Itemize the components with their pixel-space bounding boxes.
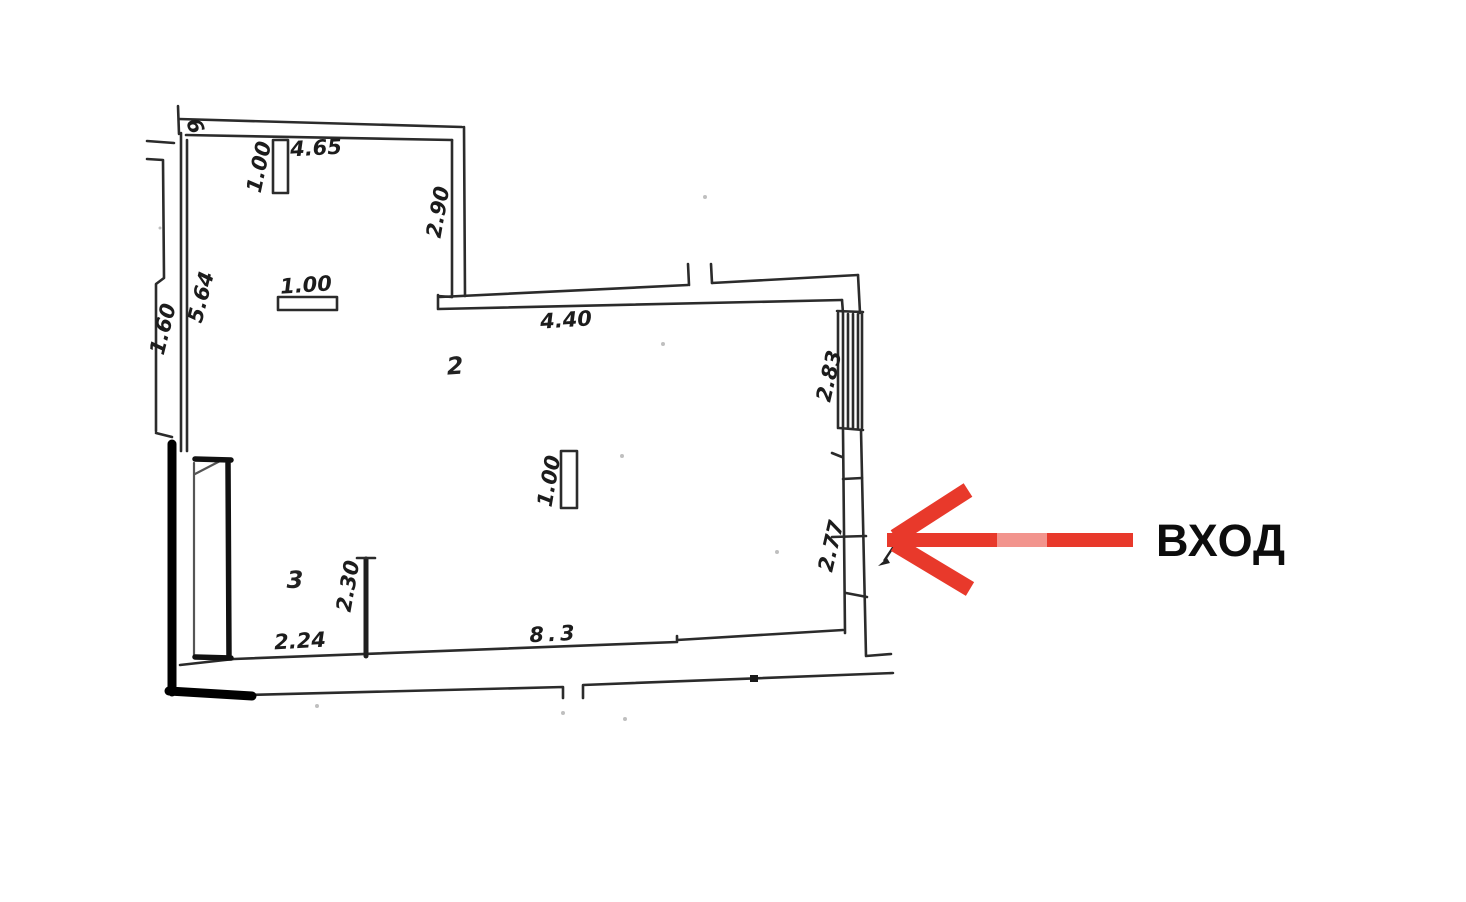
right-wall: [842, 275, 891, 656]
dimension-labels: 1.00 4.65 2.90 1.00 5.64 1.60 4.40 2.83 …: [145, 115, 849, 654]
scan-speckles: [159, 195, 780, 721]
door-leaf-heavy-edges: [195, 459, 231, 658]
entrance-arrow-lower-stroke: [895, 544, 970, 589]
bottom-outer-wall: [248, 673, 893, 698]
dim-right-jog-depth: 2.90: [422, 184, 455, 239]
upper-doorway-jambs: [688, 264, 712, 285]
neighbor-wall-contour-left: [147, 106, 179, 437]
floor-plan-drawing: 1.00 4.65 2.90 1.00 5.64 1.60 4.40 2.83 …: [0, 0, 1466, 902]
dim-right-window-height: 2.83: [811, 348, 846, 404]
entrance-annotation: ВХОД: [887, 490, 1286, 589]
room-number-2: 2: [446, 351, 465, 380]
dim-partition-length: 2.30: [332, 558, 365, 613]
left-wall: [181, 133, 187, 451]
dim-bottom-wall-length: 8.3: [529, 621, 579, 648]
plan-linework: [147, 106, 894, 721]
upper-wall-4-40: [438, 275, 858, 309]
dim-left-wall-length: 5.64: [183, 269, 219, 325]
left-window-marker: [278, 297, 337, 310]
room-number-3: 3: [287, 566, 304, 594]
dim-outer-offset-length: 1.60: [145, 301, 181, 357]
dim-left-window-width: 1.00: [279, 271, 332, 299]
entrance-label: ВХОД: [1156, 515, 1286, 566]
floor-plan-page: 1.00 4.65 2.90 1.00 5.64 1.60 4.40 2.83 …: [0, 0, 1466, 902]
dim-top-wall-length: 4.65: [288, 135, 342, 162]
entrance-arrow-upper-stroke: [895, 490, 968, 537]
bottom-wall-blot: [750, 675, 758, 682]
dim-top-niche-width: 1.00: [242, 139, 276, 195]
dim-bottom-left-width: 2.24: [273, 628, 326, 655]
door-leaf-thin-edges: [194, 460, 222, 657]
upper-right-jog-wall: [452, 127, 465, 297]
dim-upper-wall-length: 4.40: [538, 306, 592, 334]
entrance-arrow-faded-segment: [997, 533, 1047, 547]
